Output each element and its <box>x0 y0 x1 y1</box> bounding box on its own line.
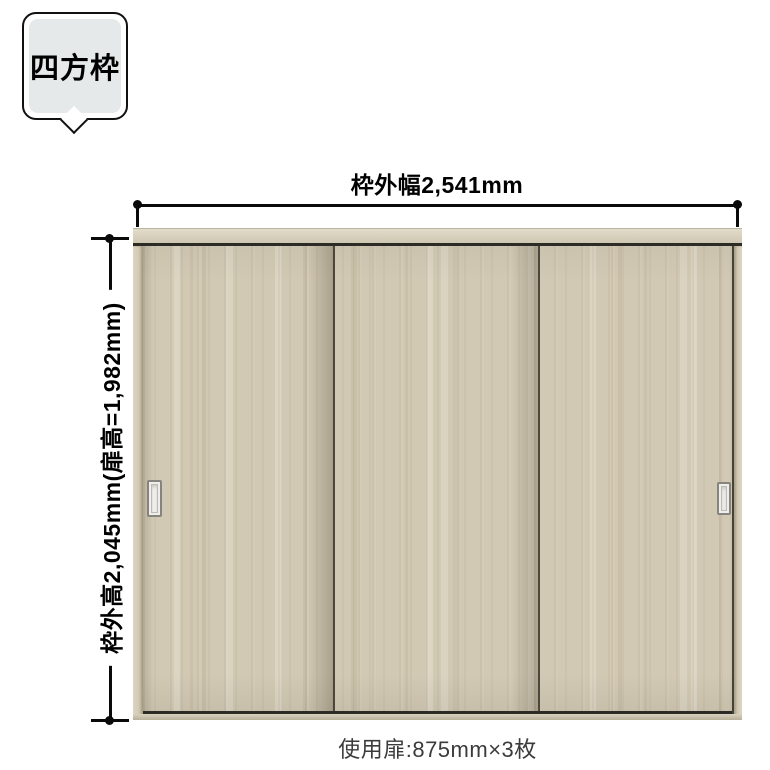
width-dimension-label: 枠外幅2,541mm <box>137 166 737 200</box>
width-dimension-tick-left <box>136 205 139 227</box>
footer-caption: 使用扉:875mm×3枚 <box>133 732 742 764</box>
door-panel-middle <box>333 246 538 711</box>
door-handle-right <box>717 482 731 515</box>
height-dimension-endpoint-dot-bottom <box>105 716 114 725</box>
height-dimension-label: 枠外高2,045mm(扉高=1,982mm) <box>93 290 127 666</box>
door-frame-top-rail <box>133 228 742 246</box>
door-handle-left-recess <box>151 484 158 513</box>
door-frame-right <box>732 246 742 720</box>
callout-bubble: 四方枠 <box>22 12 128 120</box>
page: { "bubble": { "label": "四方枠" }, "dimensi… <box>0 0 770 770</box>
door-panel-left <box>143 246 333 711</box>
door-illustration <box>133 228 742 720</box>
door-handle-left <box>147 480 162 517</box>
door-handle-right-recess <box>721 486 727 511</box>
width-dimension-line <box>137 204 737 207</box>
door-sill <box>133 714 742 720</box>
door-panel-right <box>538 246 732 711</box>
width-dimension-tick-right <box>736 205 739 227</box>
callout-label: 四方枠 <box>29 19 121 113</box>
door-frame-left <box>133 246 143 720</box>
height-dimension-endpoint-dot-top <box>105 234 114 243</box>
